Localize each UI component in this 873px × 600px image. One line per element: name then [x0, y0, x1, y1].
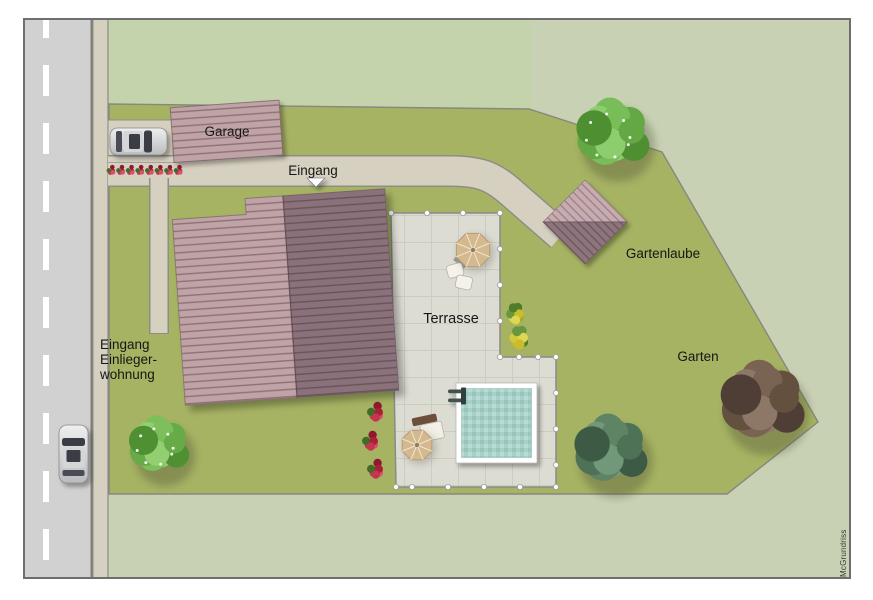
- house-roof-dark: [283, 189, 399, 398]
- pool-water: [462, 389, 532, 458]
- road: [25, 19, 108, 577]
- eingang-label: Eingang: [288, 163, 338, 178]
- driving-car: [59, 425, 88, 483]
- einliegerwohnung-label: Eingang Einlieger- wohnung: [99, 337, 157, 382]
- car-rear-window: [63, 470, 85, 476]
- einlieger-line-3: wohnung: [99, 367, 155, 382]
- sidewalk: [93, 20, 108, 577]
- gartenlaube-label: Gartenlaube: [626, 246, 700, 261]
- site-plan-canvas: Garage Eingang Gartenlaube Terrasse Gart…: [0, 0, 873, 600]
- house-building: [171, 189, 399, 405]
- house-roof-light: [171, 196, 297, 405]
- garage-label: Garage: [204, 124, 249, 139]
- einlieger-line-1: Eingang: [100, 337, 150, 352]
- patio-chair: [455, 274, 473, 290]
- site-plan: Garage Eingang Gartenlaube Terrasse Gart…: [0, 0, 873, 600]
- car-sunroof: [67, 450, 81, 462]
- credit-label: McGrundriss: [839, 529, 848, 577]
- car-windshield: [144, 131, 152, 153]
- terrasse-label: Terrasse: [423, 311, 479, 327]
- road-surface: [25, 20, 91, 577]
- einlieger-line-2: Einlieger-: [100, 352, 157, 367]
- pool: [448, 383, 537, 463]
- car-rear-window: [116, 131, 122, 152]
- neighbor-lawn: [109, 20, 532, 108]
- car-windshield: [62, 438, 85, 446]
- garten-label: Garten: [677, 349, 718, 364]
- car-sunroof: [129, 134, 140, 149]
- parked-car: [110, 128, 167, 155]
